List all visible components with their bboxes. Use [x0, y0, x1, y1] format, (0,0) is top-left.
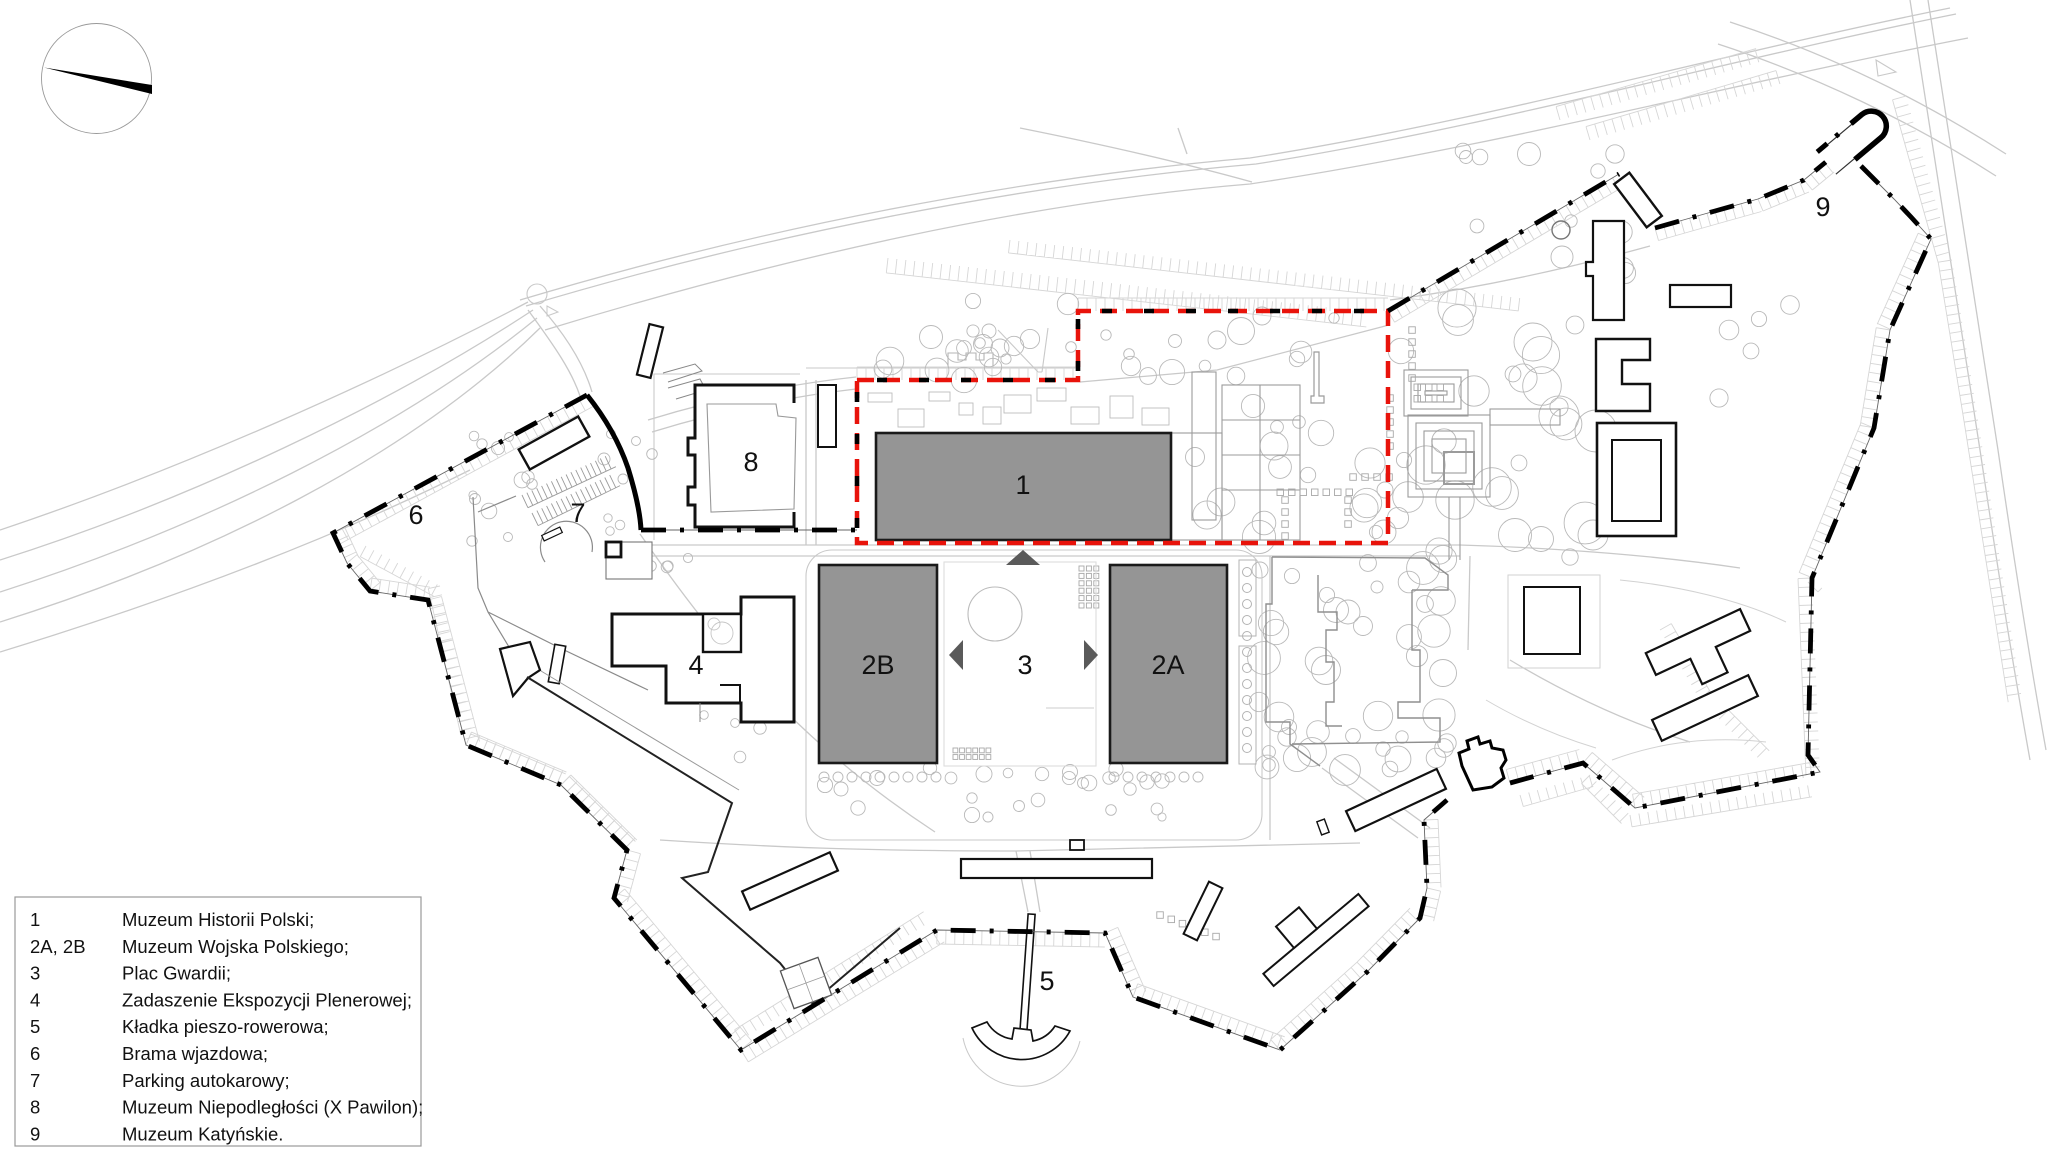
svg-text:1: 1 — [30, 909, 40, 930]
svg-text:5: 5 — [1039, 966, 1054, 996]
svg-text:7: 7 — [570, 498, 585, 528]
svg-text:8: 8 — [743, 447, 758, 477]
svg-text:Brama wjazdowa;: Brama wjazdowa; — [122, 1043, 268, 1064]
svg-text:4: 4 — [688, 650, 703, 680]
svg-text:Zadaszenie Ekspozycji Plenerow: Zadaszenie Ekspozycji Plenerowej; — [122, 989, 412, 1010]
svg-text:6: 6 — [30, 1043, 40, 1064]
svg-text:Parking autokarowy;: Parking autokarowy; — [122, 1070, 290, 1091]
svg-text:5: 5 — [30, 1016, 40, 1037]
svg-text:6: 6 — [408, 500, 423, 530]
svg-text:8: 8 — [30, 1097, 40, 1118]
svg-text:9: 9 — [30, 1123, 40, 1144]
svg-text:2A, 2B: 2A, 2B — [30, 936, 86, 957]
svg-text:Muzeum Katyńskie.: Muzeum Katyńskie. — [122, 1123, 283, 1144]
svg-text:4: 4 — [30, 989, 40, 1010]
svg-text:7: 7 — [30, 1070, 40, 1091]
svg-text:2A: 2A — [1151, 650, 1184, 680]
svg-text:Muzeum Wojska Polskiego;: Muzeum Wojska Polskiego; — [122, 936, 349, 957]
svg-text:Plac Gwardii;: Plac Gwardii; — [122, 963, 231, 984]
svg-text:2B: 2B — [861, 650, 894, 680]
svg-text:3: 3 — [1017, 650, 1032, 680]
svg-text:Kładka pieszo-rowerowa;: Kładka pieszo-rowerowa; — [122, 1016, 329, 1037]
svg-text:Muzeum Niepodległości (X Pawil: Muzeum Niepodległości (X Pawilon); — [122, 1097, 423, 1118]
svg-text:9: 9 — [1815, 192, 1830, 222]
svg-text:3: 3 — [30, 963, 40, 984]
svg-text:Muzeum Historii Polski;: Muzeum Historii Polski; — [122, 909, 314, 930]
svg-text:1: 1 — [1015, 470, 1030, 500]
